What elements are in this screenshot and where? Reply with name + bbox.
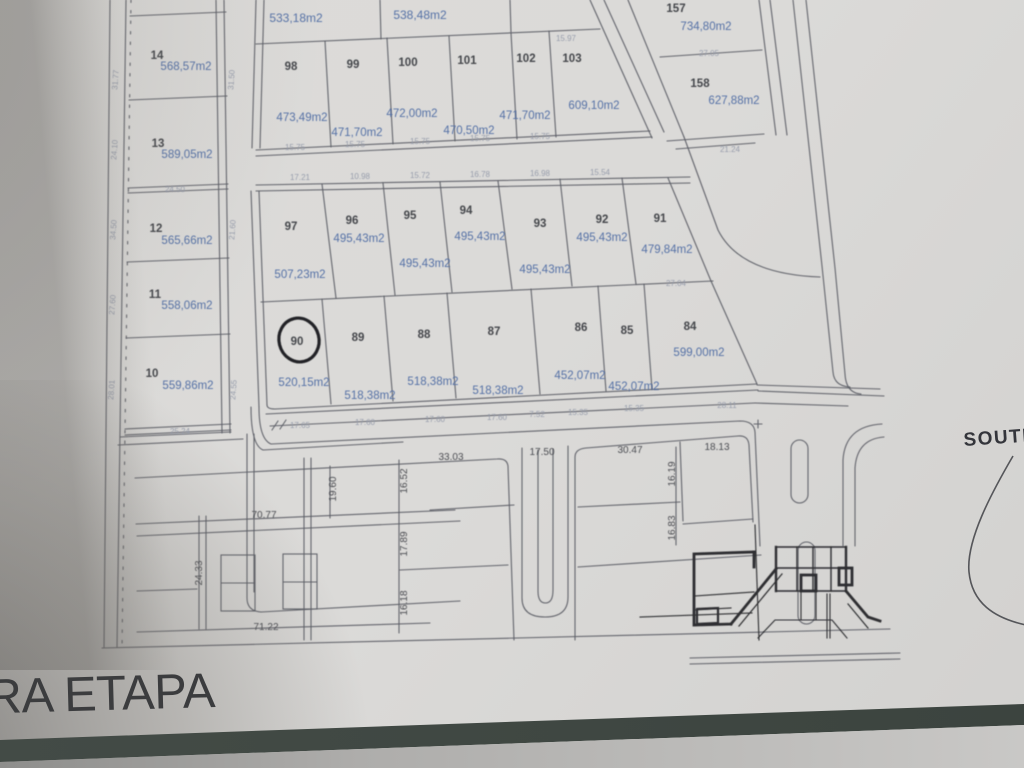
svg-text:599,00m2: 599,00m2	[673, 347, 724, 359]
svg-text:21.24: 21.24	[720, 145, 741, 154]
svg-text:103: 103	[562, 53, 581, 65]
svg-text:30.47: 30.47	[617, 445, 642, 456]
svg-text:452,07m2: 452,07m2	[554, 370, 605, 382]
svg-text:734,80m2: 734,80m2	[680, 21, 731, 33]
svg-text:RA ETAPA: RA ETAPA	[0, 664, 216, 724]
svg-text:16.83: 16.83	[667, 515, 678, 540]
svg-text:495,43m2: 495,43m2	[576, 232, 627, 244]
svg-text:92: 92	[596, 214, 609, 226]
svg-text:15.54: 15.54	[590, 168, 611, 177]
svg-text:627,88m2: 627,88m2	[708, 95, 759, 107]
svg-text:SOUTH: SOUTH	[963, 425, 1024, 451]
svg-text:452,07m2: 452,07m2	[608, 381, 659, 393]
svg-text:16.19: 16.19	[667, 461, 678, 486]
svg-text:158: 158	[690, 78, 710, 90]
svg-text:86: 86	[575, 322, 588, 334]
svg-text:91: 91	[654, 213, 667, 225]
svg-text:609,10m2: 609,10m2	[568, 100, 619, 112]
svg-text:15.35: 15.35	[624, 404, 645, 413]
svg-text:157: 157	[666, 3, 685, 15]
svg-text:479,84m2: 479,84m2	[641, 244, 692, 256]
svg-text:28.11: 28.11	[717, 401, 737, 410]
svg-text:15.35: 15.35	[568, 408, 589, 417]
svg-text:85: 85	[621, 325, 634, 337]
svg-text:27.04: 27.04	[666, 279, 687, 288]
svg-text:18.13: 18.13	[704, 442, 729, 453]
svg-text:84: 84	[684, 321, 697, 333]
svg-text:27.05: 27.05	[699, 49, 720, 58]
